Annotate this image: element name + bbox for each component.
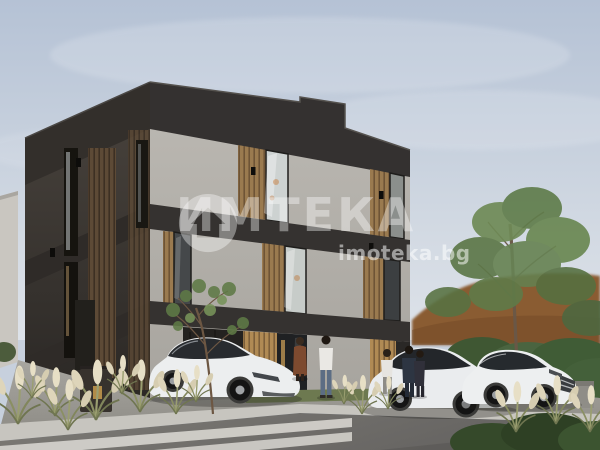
timber-slats <box>262 243 285 312</box>
render-photo: ИМ ТЕКА imoteka.bg <box>0 0 600 450</box>
side-window <box>136 140 148 228</box>
wall-lamp <box>379 191 384 199</box>
wall-lamp <box>369 243 374 251</box>
timber-slats <box>370 169 390 237</box>
neighbour-wall <box>0 191 18 368</box>
side-door <box>75 300 95 370</box>
scene-canvas <box>0 0 600 450</box>
timber-slats <box>163 231 174 304</box>
window <box>390 173 404 239</box>
timber-slats <box>363 256 384 320</box>
wall-lamp <box>76 158 81 167</box>
wall-lamp <box>251 167 256 175</box>
timber-slats <box>238 145 266 220</box>
cloud <box>50 17 570 93</box>
window <box>384 259 400 321</box>
wall-lamp <box>50 248 55 257</box>
building-side-face <box>25 82 150 400</box>
